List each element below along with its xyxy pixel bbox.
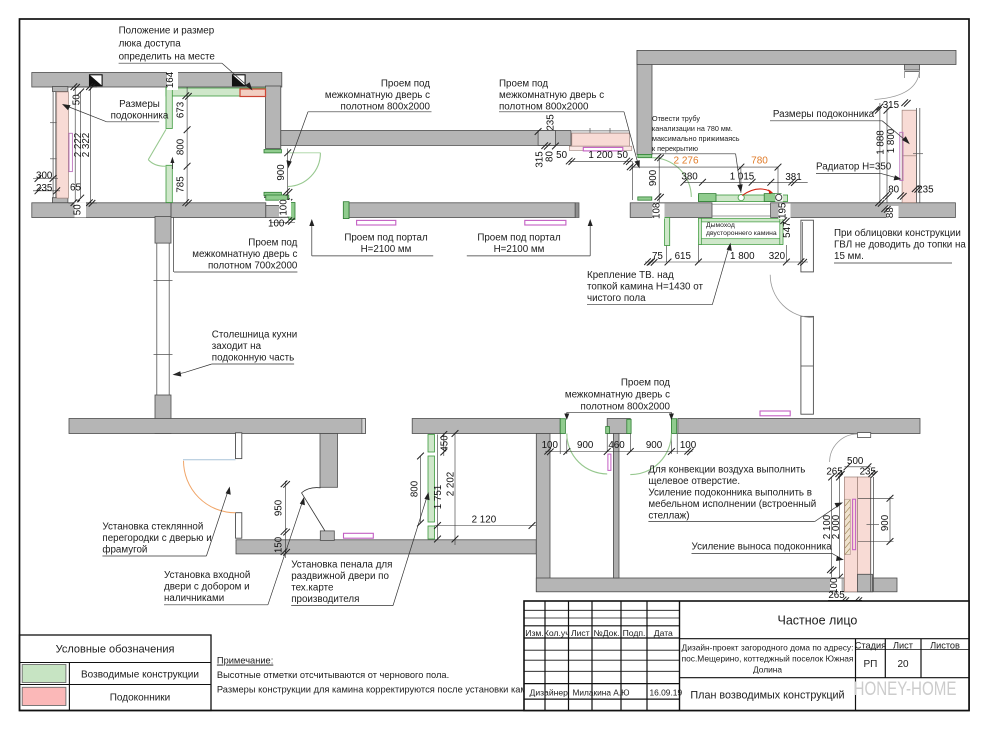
svg-text:100: 100 xyxy=(680,440,697,451)
svg-text:Долина: Долина xyxy=(753,664,782,674)
svg-text:950: 950 xyxy=(274,499,285,516)
svg-text:Милакина А.Ю: Милакина А.Ю xyxy=(573,687,630,697)
svg-text:Н=2100 мм: Н=2100 мм xyxy=(494,244,545,255)
svg-text:При облицовки конструкции: При облицовки конструкции xyxy=(834,228,961,239)
svg-text:Условные обозначения: Условные обозначения xyxy=(56,644,175,656)
svg-text:2 000: 2 000 xyxy=(831,514,842,539)
svg-text:наличниками: наличниками xyxy=(164,593,224,604)
svg-text:900: 900 xyxy=(648,169,659,186)
svg-text:Примечание:: Примечание: xyxy=(217,656,273,666)
svg-text:100: 100 xyxy=(268,219,285,230)
svg-text:Крепление ТВ. над: Крепление ТВ. над xyxy=(587,270,674,281)
svg-text:785: 785 xyxy=(175,176,186,193)
svg-text:900: 900 xyxy=(577,440,594,451)
svg-text:щелевое отверстие.: щелевое отверстие. xyxy=(648,476,740,487)
svg-text:межкомнатную дверь с: межкомнатную дверь с xyxy=(325,90,430,101)
svg-text:Размеры конструкции для камина: Размеры конструкции для камина корректир… xyxy=(217,685,543,695)
svg-text:Высотные отметки отсчитываются: Высотные отметки отсчитываются от чернов… xyxy=(217,670,449,680)
svg-text:Положение и размер: Положение и размер xyxy=(119,26,215,37)
svg-text:1 015: 1 015 xyxy=(730,172,755,183)
svg-text:2 202: 2 202 xyxy=(445,472,456,497)
svg-text:1 200: 1 200 xyxy=(588,150,613,161)
svg-text:450: 450 xyxy=(440,435,451,452)
svg-text:Подп.: Подп. xyxy=(623,628,646,638)
svg-text:РП: РП xyxy=(863,659,877,670)
svg-text:460: 460 xyxy=(608,440,625,451)
svg-text:2 276: 2 276 xyxy=(673,156,698,167)
svg-text:подоконную часть: подоконную часть xyxy=(212,352,294,363)
svg-text:2 120: 2 120 xyxy=(472,514,497,525)
svg-text:Возводимые конструкции: Возводимые конструкции xyxy=(81,670,199,681)
svg-text:мебельном исполнении (встроенн: мебельном исполнении (встроенный xyxy=(648,499,816,510)
svg-text:780: 780 xyxy=(751,156,768,167)
svg-text:двери с добором и: двери с добором и xyxy=(164,582,250,593)
svg-text:235: 235 xyxy=(860,467,877,478)
svg-text:двустороннего камина: двустороннего камина xyxy=(706,230,777,237)
svg-text:1 751: 1 751 xyxy=(433,485,444,510)
svg-text:2 322: 2 322 xyxy=(81,133,92,158)
svg-text:673: 673 xyxy=(175,101,186,118)
svg-text:300: 300 xyxy=(36,170,53,181)
svg-text:Дизайн-проект загородного дома: Дизайн-проект загородного дома по адресу… xyxy=(682,642,854,652)
svg-text:Лист: Лист xyxy=(571,628,590,638)
svg-text:Дымоход: Дымоход xyxy=(706,222,735,229)
svg-text:Дизайнер: Дизайнер xyxy=(530,687,569,697)
svg-text:Усиление подоконника выполнить: Усиление подоконника выполнить в xyxy=(648,487,812,498)
svg-text:полотном 800х2000: полотном 800х2000 xyxy=(341,102,431,113)
svg-text:235: 235 xyxy=(36,183,53,194)
svg-text:80: 80 xyxy=(888,184,899,195)
svg-text:80: 80 xyxy=(545,151,556,162)
svg-text:люка доступа: люка доступа xyxy=(119,39,182,50)
svg-text:Проем под портал: Проем под портал xyxy=(344,233,428,244)
svg-text:100: 100 xyxy=(279,199,290,216)
svg-text:235: 235 xyxy=(917,184,934,195)
svg-text:Кол.уч: Кол.уч xyxy=(544,628,570,638)
svg-text:Для конвекции воздуха выполнит: Для конвекции воздуха выполнить xyxy=(648,464,805,475)
svg-text:тех.карте: тех.карте xyxy=(291,582,334,593)
svg-text:чистого пола: чистого пола xyxy=(587,293,646,304)
svg-text:Проем под: Проем под xyxy=(499,79,548,90)
svg-text:HONEY-HOME: HONEY-HOME xyxy=(854,679,957,700)
svg-text:Листов: Листов xyxy=(930,640,960,650)
svg-text:Проем под: Проем под xyxy=(248,237,297,248)
svg-text:полотном 700х2000: полотном 700х2000 xyxy=(208,260,298,271)
svg-text:Размеры подоконника: Размеры подоконника xyxy=(773,109,875,120)
svg-text:подоконника: подоконника xyxy=(111,110,169,121)
svg-text:Усиление выноса подоконника: Усиление выноса подоконника xyxy=(692,542,833,553)
svg-text:Столешница кухни: Столешница кухни xyxy=(212,329,297,340)
svg-text:800: 800 xyxy=(410,480,421,497)
svg-text:перегородки с дверью и: перегородки с дверью и xyxy=(102,533,211,544)
svg-text:Дата: Дата xyxy=(654,628,673,638)
svg-text:фрамугой: фрамугой xyxy=(102,544,147,555)
svg-text:20: 20 xyxy=(897,659,909,670)
svg-text:Стадия: Стадия xyxy=(855,640,886,650)
svg-text:50: 50 xyxy=(72,94,83,105)
svg-text:межкомнатную дверь с: межкомнатную дверь с xyxy=(565,389,670,400)
svg-text:Проем под: Проем под xyxy=(381,79,430,90)
svg-text:195: 195 xyxy=(778,202,789,219)
svg-text:Отвести трубу: Отвести трубу xyxy=(652,114,700,123)
svg-text:Изм.: Изм. xyxy=(525,628,543,638)
svg-text:ГВЛ не доводить до топки на: ГВЛ не доводить до топки на xyxy=(834,240,966,251)
svg-text:100: 100 xyxy=(542,440,559,451)
svg-text:межкомнатную дверь с: межкомнатную дверь с xyxy=(499,90,604,101)
svg-text:900: 900 xyxy=(276,164,287,181)
svg-text:межкомнатную дверь с: межкомнатную дверь с xyxy=(192,249,297,260)
svg-text:№Док.: №Док. xyxy=(593,628,619,638)
svg-text:Размеры: Размеры xyxy=(119,99,160,110)
svg-text:500: 500 xyxy=(847,456,864,467)
svg-text:900: 900 xyxy=(880,514,891,531)
svg-text:к перекрытию: к перекрытию xyxy=(652,144,699,153)
svg-text:75: 75 xyxy=(652,251,663,262)
svg-text:полотном 800х2000: полотном 800х2000 xyxy=(581,401,671,412)
svg-text:315: 315 xyxy=(883,100,900,111)
svg-text:канализации на 780 мм.: канализации на 780 мм. xyxy=(652,124,733,133)
svg-text:800: 800 xyxy=(175,138,186,155)
svg-text:16.09.19: 16.09.19 xyxy=(650,687,683,697)
svg-text:Установка пенала для: Установка пенала для xyxy=(291,559,392,570)
svg-text:Радиатор Н=350: Радиатор Н=350 xyxy=(816,162,892,173)
svg-text:900: 900 xyxy=(646,440,663,451)
svg-text:Установка стеклянной: Установка стеклянной xyxy=(102,521,203,532)
svg-text:полотном 800х2000: полотном 800х2000 xyxy=(499,102,589,113)
svg-text:стеллаж): стеллаж) xyxy=(648,510,689,521)
svg-text:1 800: 1 800 xyxy=(730,251,755,262)
svg-text:топкой камина Н=1430 от: топкой камина Н=1430 от xyxy=(587,282,703,293)
svg-text:320: 320 xyxy=(769,251,786,262)
svg-text:раздвижной двери по: раздвижной двери по xyxy=(291,571,389,582)
svg-text:50: 50 xyxy=(73,204,84,215)
svg-text:максимально прижимаясь: максимально прижимаясь xyxy=(652,134,740,143)
svg-text:615: 615 xyxy=(675,251,692,262)
svg-text:88: 88 xyxy=(885,207,896,218)
svg-text:Н=2100 мм: Н=2100 мм xyxy=(361,244,412,255)
svg-text:164: 164 xyxy=(165,71,176,88)
svg-text:235: 235 xyxy=(546,114,557,131)
svg-text:150: 150 xyxy=(274,536,285,553)
svg-text:380: 380 xyxy=(681,172,698,183)
svg-text:15 мм.: 15 мм. xyxy=(834,251,864,262)
svg-text:265: 265 xyxy=(828,590,845,601)
svg-text:Лист: Лист xyxy=(893,640,914,650)
svg-text:1 888: 1 888 xyxy=(876,130,887,155)
svg-text:Частное лицо: Частное лицо xyxy=(778,613,858,627)
svg-text:50: 50 xyxy=(617,150,628,161)
svg-text:пос.Мещерино, коттеджный посел: пос.Мещерино, коттеджный поселок Южная xyxy=(682,653,854,663)
svg-text:381: 381 xyxy=(785,172,801,183)
svg-text:65: 65 xyxy=(70,183,81,194)
svg-text:Проем под: Проем под xyxy=(621,377,670,388)
svg-text:определить на месте: определить на месте xyxy=(119,52,216,63)
svg-text:заходит на: заходит на xyxy=(212,341,262,352)
svg-text:Подоконники: Подоконники xyxy=(110,692,171,703)
svg-text:План возводимых конструкций: План возводимых конструкций xyxy=(690,689,844,701)
svg-text:производителя: производителя xyxy=(291,594,359,605)
svg-text:Проем под портал: Проем под портал xyxy=(477,233,561,244)
svg-text:50: 50 xyxy=(556,150,567,161)
svg-text:Установка входной: Установка входной xyxy=(164,570,250,581)
svg-text:108: 108 xyxy=(652,202,663,219)
